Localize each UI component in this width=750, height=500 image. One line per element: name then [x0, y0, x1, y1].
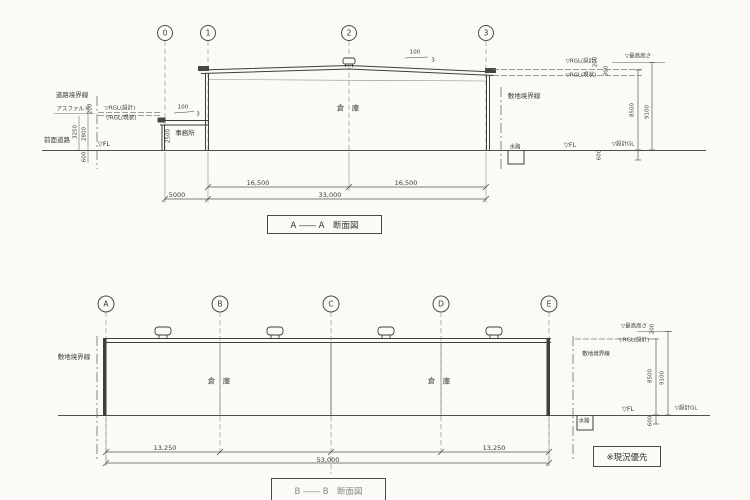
- bottom-span-de-dim: 13,250: [483, 445, 506, 452]
- top-grid-bubble-label-0: 0: [163, 29, 168, 37]
- top-total-dim: 33,000: [319, 192, 342, 199]
- bottom-warehouse-label-1: 倉 庫: [208, 377, 231, 385]
- bottom-roof-vents: [155, 327, 502, 339]
- bottom-dim-600: 600: [648, 416, 654, 427]
- top-grid-lines: [165, 41, 486, 150]
- front-road-label: 前面道路: [44, 137, 70, 144]
- drawing-linework: [0, 0, 750, 500]
- bottom-grid-bubble-label-c: C: [328, 300, 333, 308]
- note-text: ※現況優先: [606, 451, 647, 463]
- top-roof-slope-mark: [405, 57, 428, 58]
- bottom-site-boundary-right-label: 敷地境界線: [582, 352, 610, 358]
- fl-left-label: ▽FL: [98, 141, 110, 148]
- top-grid-bubble-label-3: 3: [484, 29, 489, 37]
- bottom-title-box-clipped: B ―― B 断面図: [271, 478, 386, 500]
- roof-slope-rise: 3: [431, 58, 435, 64]
- note-box: ※現況優先: [593, 446, 661, 467]
- top-waterway-channel: [508, 151, 524, 164]
- dim-300-right: 300: [604, 66, 610, 77]
- bottom-span-ab-dim: 13,250: [154, 445, 177, 452]
- top-title: A ―― A 断面図: [290, 219, 358, 231]
- roof-slope-run: 100: [410, 50, 421, 56]
- bottom-waterway-label: 水路: [578, 419, 589, 425]
- road-boundary-label: 道路境界線: [56, 92, 89, 99]
- pavement-label: アスファルト: [56, 107, 89, 113]
- bottom-fl-label: ▽FL: [622, 406, 634, 413]
- rgl-existing-left-label: ▽RGL(現状): [106, 116, 137, 122]
- bottom-grid-bubble-label-e: E: [547, 300, 552, 308]
- dim-3250: 3250: [73, 125, 79, 139]
- top-grid-bubble-label-1: 1: [206, 29, 211, 37]
- bottom-rgl-design-label: ▽RGL(設計): [619, 338, 650, 344]
- scanned-section-drawing-sheet: 0 1 2 3 道路境界線 アスファルト 200 ▽RGL(設計) ▽RGL(現…: [0, 0, 750, 500]
- top-title-box: A ―― A 断面図: [267, 215, 382, 234]
- rgl-design-left-label: ▽RGL(設計): [105, 106, 136, 112]
- top-span-right-dim: 16,500: [395, 180, 418, 187]
- top-waterway-label: 水路: [509, 145, 520, 151]
- rgl-existing-right-label: ▽RGL(現状): [566, 73, 597, 79]
- office-slope-run: 100: [178, 105, 189, 111]
- bottom-dim-9100: 9100: [660, 371, 666, 385]
- top-dim-8500: 8500: [630, 103, 636, 117]
- bottom-grid-bubble-label-d: D: [438, 300, 444, 308]
- office-slope-rise: 3: [196, 112, 200, 118]
- bottom-title: B ―― B 断面図: [294, 485, 362, 497]
- top-max-height-label: ▽最高高さ: [625, 54, 651, 60]
- dim-600-right: 600: [597, 150, 603, 161]
- top-design-gl-label: ▽設計GL: [612, 142, 635, 148]
- bottom-grid-bubble-label-a: A: [103, 300, 108, 308]
- dim-200-right: 200: [593, 57, 599, 68]
- top-span-left-dim: 16,500: [247, 180, 270, 187]
- bottom-total-dim: 53,000: [317, 457, 340, 464]
- top-warehouse-label: 倉 庫: [337, 104, 360, 112]
- bottom-grid-bubble-label-b: B: [217, 300, 222, 308]
- top-office-span-dim: 5000: [169, 192, 186, 199]
- bottom-max-height-label: ▽最高高さ: [621, 324, 647, 330]
- bottom-dim-8500: 8500: [648, 369, 654, 383]
- bottom-design-gl-label: ▽設計GL: [675, 406, 698, 412]
- bottom-site-boundary-left-label: 敷地境界線: [58, 354, 91, 361]
- bottom-right-height-dims: [637, 332, 672, 425]
- dim-200-left: 200: [88, 104, 94, 115]
- top-site-boundary-right-label: 敷地境界線: [508, 93, 541, 100]
- dim-600-left: 600: [82, 152, 88, 163]
- top-grid-bubble-label-2: 2: [347, 29, 352, 37]
- bottom-warehouse-label-2: 倉 庫: [428, 377, 451, 385]
- dim-2500: 2500: [166, 129, 172, 143]
- dim-2800: 2800: [82, 127, 88, 141]
- fl-right-label: ▽FL: [564, 142, 576, 149]
- top-dim-9100: 9100: [645, 105, 651, 119]
- bottom-dim-200: 200: [650, 324, 656, 335]
- office-label: 事務所: [175, 130, 195, 137]
- bottom-building-outline: [103, 338, 551, 416]
